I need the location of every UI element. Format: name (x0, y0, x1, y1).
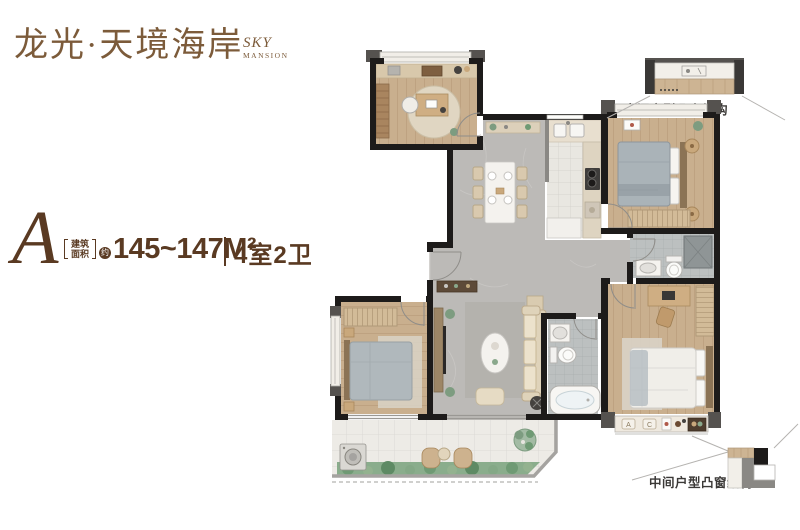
bookshelf (376, 84, 389, 138)
desk-chair (402, 97, 418, 113)
brand-logo: 龙光·天境海岸 (14, 17, 243, 66)
bracket-right (92, 239, 96, 259)
area-label-text: 建筑面积 (71, 239, 89, 259)
bathroom-sink (636, 260, 661, 276)
tv-console (434, 308, 443, 392)
master-bedroom (608, 284, 714, 414)
area-label: 建筑面积 (64, 239, 96, 259)
dining-area (473, 162, 527, 223)
floor-plan: A C (330, 50, 800, 500)
stove (585, 168, 600, 190)
plant-icon (445, 309, 455, 319)
washing-machine-icon (340, 444, 366, 470)
wardrobe (628, 210, 690, 227)
shower (684, 236, 712, 268)
svg-text:C: C (647, 422, 652, 429)
study-room (376, 64, 477, 144)
armchair (476, 388, 504, 405)
bedroom-1 (608, 118, 714, 228)
wardrobe (696, 286, 714, 336)
rooms-count: 4室2卫 (234, 235, 313, 270)
brand-mansion: MANSION (243, 52, 289, 60)
foyer (486, 122, 540, 133)
brand-sky: SKY (243, 36, 289, 51)
wardrobe (344, 308, 397, 326)
tv (443, 326, 446, 374)
balcony-plant (514, 429, 536, 451)
balcony (332, 420, 556, 482)
bed (344, 340, 412, 400)
master-bathroom (548, 319, 600, 414)
bedroom-3 (341, 302, 427, 414)
unit-letter: A (12, 204, 58, 272)
desk (416, 94, 448, 116)
bay-window-detail-bottom (632, 424, 798, 488)
bathtub (550, 386, 600, 414)
bracket-left (64, 239, 68, 259)
toilet (550, 347, 576, 363)
bathroom-shared (630, 234, 714, 278)
svg-text:A: A (626, 422, 631, 429)
bathroom-sink (550, 324, 570, 342)
floorplan-page: 龙光·天境海岸 SKY MANSION A 建筑面积 约 145~147M² 4… (0, 0, 800, 530)
toilet (666, 256, 682, 278)
coffee-table (481, 333, 509, 373)
plant-icon (445, 387, 455, 397)
bay-window-seat: A C (615, 416, 708, 434)
brand-logo-sub: SKY MANSION (243, 36, 289, 60)
info-divider (224, 237, 226, 266)
kitchen (545, 120, 601, 238)
approx-badge: 约 (99, 247, 111, 259)
